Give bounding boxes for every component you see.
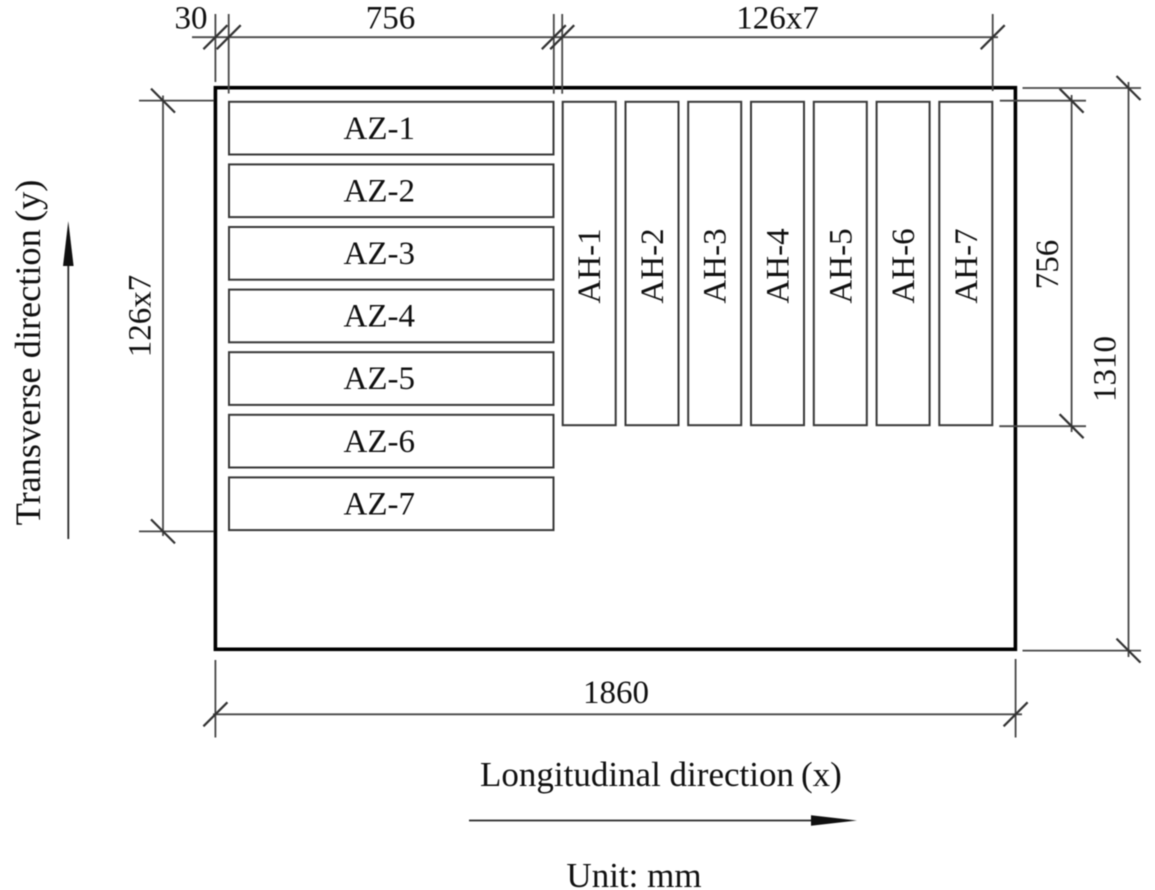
svg-text:AH-6: AH-6 — [886, 228, 922, 303]
svg-text:AH-1: AH-1 — [572, 228, 608, 303]
svg-text:126x7: 126x7 — [123, 275, 159, 358]
svg-text:Unit: mm: Unit: mm — [566, 856, 701, 890]
svg-text:Longitudinal direction (x): Longitudinal direction (x) — [480, 755, 842, 794]
svg-text:AZ-7: AZ-7 — [344, 486, 415, 522]
svg-text:AZ-1: AZ-1 — [344, 111, 415, 147]
svg-text:AH-2: AH-2 — [635, 228, 671, 303]
svg-text:AZ-4: AZ-4 — [344, 299, 415, 335]
svg-text:AZ-6: AZ-6 — [344, 424, 415, 460]
svg-text:AH-3: AH-3 — [698, 228, 734, 303]
svg-text:126x7: 126x7 — [736, 0, 819, 36]
svg-text:AH-4: AH-4 — [761, 228, 797, 303]
svg-text:AH-7: AH-7 — [949, 228, 985, 303]
svg-text:1310: 1310 — [1088, 336, 1124, 402]
svg-text:1860: 1860 — [583, 675, 649, 711]
svg-text:Transverse direction (y): Transverse direction (y) — [8, 180, 48, 526]
svg-text:AZ-5: AZ-5 — [344, 361, 415, 397]
svg-text:AH-5: AH-5 — [823, 228, 859, 303]
svg-text:756: 756 — [1030, 240, 1066, 290]
svg-text:AZ-2: AZ-2 — [344, 173, 415, 209]
svg-text:30: 30 — [175, 0, 208, 36]
svg-text:AZ-3: AZ-3 — [344, 236, 415, 272]
svg-text:756: 756 — [366, 0, 416, 36]
